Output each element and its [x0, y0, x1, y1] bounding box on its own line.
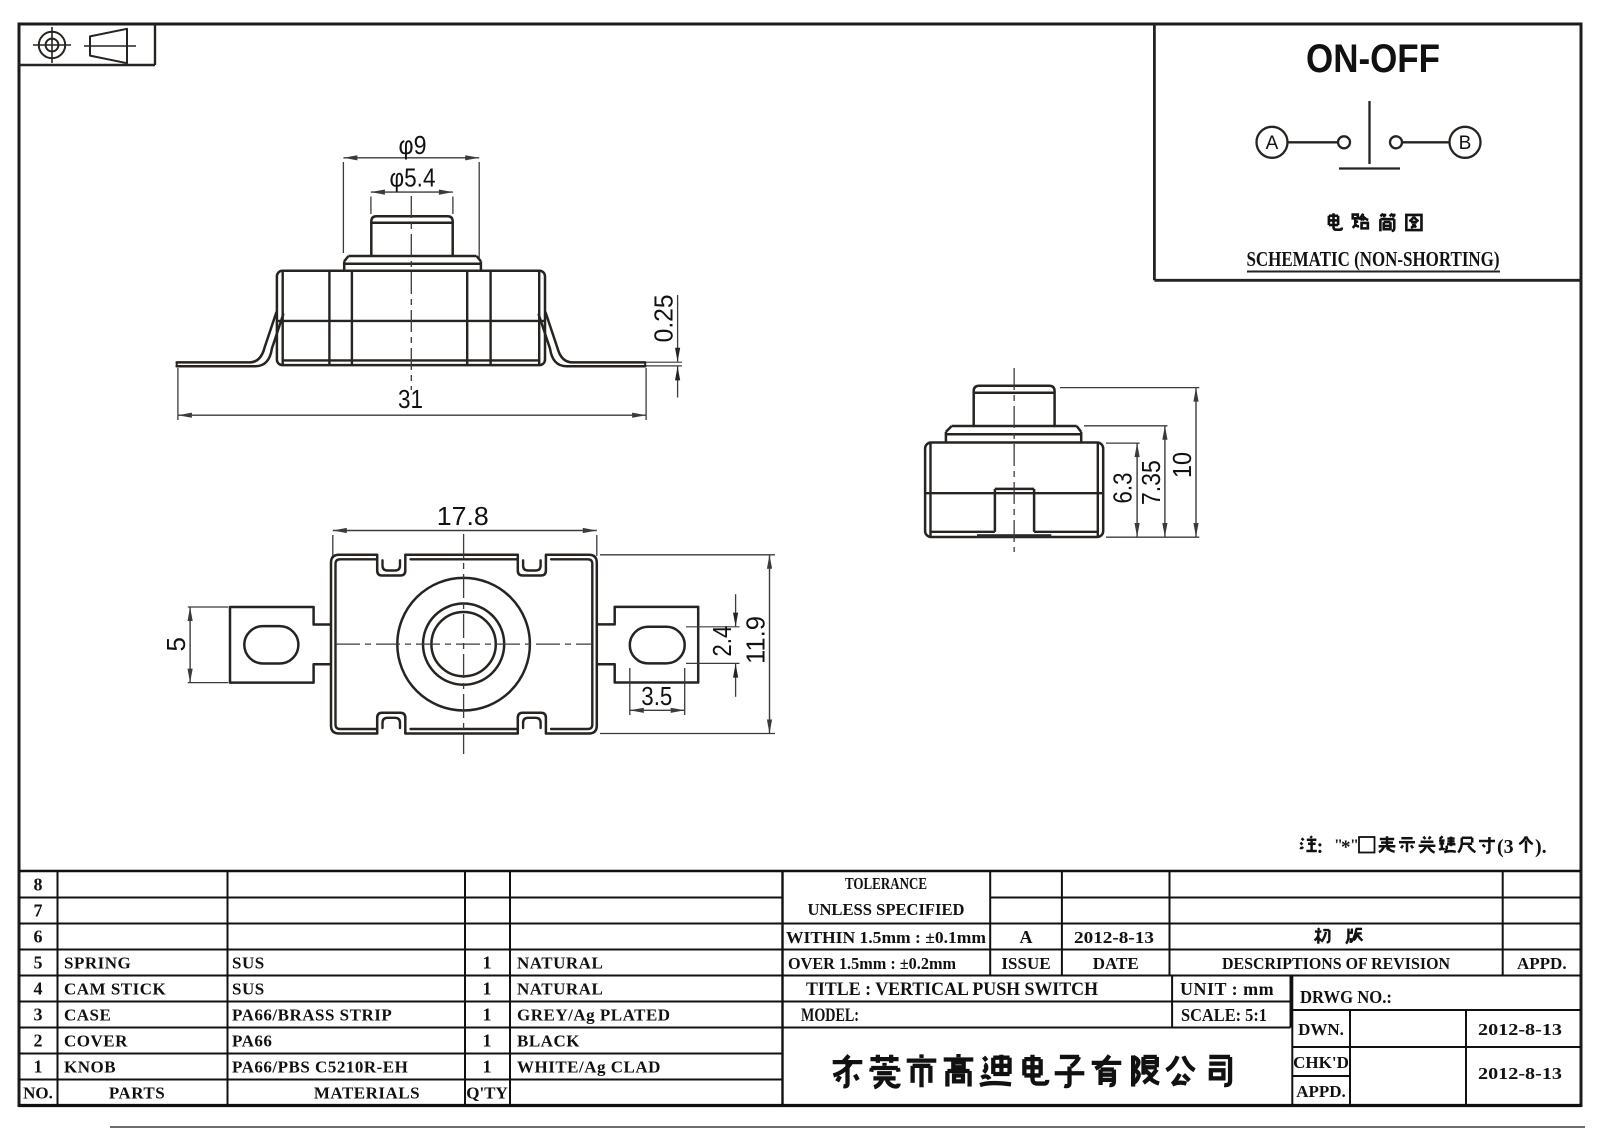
svg-text:A: A — [1266, 133, 1279, 154]
svg-text:GREY/Ag PLATED: GREY/Ag PLATED — [517, 1006, 671, 1025]
svg-text:TOLERANCE: TOLERANCE — [845, 874, 927, 893]
svg-text:MATERIALS: MATERIALS — [314, 1084, 420, 1103]
svg-text:17.8: 17.8 — [437, 501, 489, 531]
svg-text:5: 5 — [34, 953, 43, 973]
svg-text:6: 6 — [34, 927, 43, 947]
svg-text:4: 4 — [34, 979, 43, 999]
svg-text::: : — [1317, 836, 1324, 858]
svg-text:3: 3 — [34, 1005, 43, 1025]
svg-text:NATURAL: NATURAL — [517, 980, 603, 999]
svg-text:MODEL:: MODEL: — [801, 1005, 859, 1026]
svg-text:1: 1 — [483, 1005, 492, 1025]
svg-text:7: 7 — [34, 901, 43, 921]
svg-text:1: 1 — [483, 953, 492, 973]
svg-text:5: 5 — [161, 637, 191, 651]
svg-text:OVER 1.5mm : ±0.2mm: OVER 1.5mm : ±0.2mm — [788, 954, 956, 973]
svg-text:PA66/BRASS STRIP: PA66/BRASS STRIP — [232, 1006, 392, 1025]
svg-text:(3: (3 — [1497, 836, 1514, 858]
svg-text:CASE: CASE — [64, 1006, 111, 1025]
svg-text:NO.: NO. — [23, 1084, 53, 1103]
svg-text:0.25: 0.25 — [648, 294, 678, 342]
svg-text:1: 1 — [483, 979, 492, 999]
svg-text:APPD.: APPD. — [1517, 954, 1567, 973]
svg-text:B: B — [1459, 133, 1472, 154]
svg-text:1: 1 — [34, 1057, 43, 1077]
svg-text:2012-8-13: 2012-8-13 — [1478, 1020, 1562, 1039]
svg-text:CHK'D: CHK'D — [1293, 1053, 1349, 1072]
svg-text:6.3: 6.3 — [1108, 473, 1138, 504]
svg-text:NATURAL: NATURAL — [517, 954, 603, 973]
svg-text:SPRING: SPRING — [64, 954, 131, 973]
svg-text:TITLE : VERTICAL PUSH SWITCH: TITLE : VERTICAL PUSH SWITCH — [806, 979, 1098, 1000]
svg-text:ISSUE: ISSUE — [1001, 954, 1050, 973]
svg-text:2012-8-13: 2012-8-13 — [1478, 1064, 1562, 1083]
svg-text:Q'TY: Q'TY — [466, 1084, 508, 1103]
svg-text:CAM STICK: CAM STICK — [64, 980, 167, 999]
svg-text:10: 10 — [1167, 452, 1197, 478]
svg-text:SCALE: 5:1: SCALE: 5:1 — [1181, 1005, 1267, 1025]
svg-text:A: A — [1020, 927, 1033, 947]
svg-text:φ5.4: φ5.4 — [390, 163, 436, 193]
svg-text:2: 2 — [34, 1031, 43, 1051]
svg-text:SCHEMATIC (NON-SHORTING): SCHEMATIC (NON-SHORTING) — [1247, 247, 1500, 271]
svg-text:DESCRIPTIONS OF REVISION: DESCRIPTIONS OF REVISION — [1222, 954, 1451, 973]
svg-text:SUS: SUS — [232, 980, 265, 999]
svg-text:": " — [1350, 837, 1359, 854]
svg-text:1: 1 — [483, 1031, 492, 1051]
svg-text:31: 31 — [398, 384, 423, 414]
svg-text:1: 1 — [483, 1057, 492, 1077]
svg-text:7.35: 7.35 — [1136, 460, 1166, 505]
svg-text:).: ). — [1535, 836, 1547, 858]
svg-text:ON-OFF: ON-OFF — [1306, 37, 1440, 81]
svg-text:BLACK: BLACK — [517, 1032, 580, 1051]
svg-text:2.4: 2.4 — [707, 626, 737, 657]
svg-text:UNLESS SPECIFIED: UNLESS SPECIFIED — [808, 900, 965, 919]
svg-text:PARTS: PARTS — [109, 1084, 165, 1103]
svg-text:COVER: COVER — [64, 1032, 128, 1051]
svg-text:8: 8 — [34, 874, 43, 894]
svg-text:WITHIN 1.5mm : ±0.1mm: WITHIN 1.5mm : ±0.1mm — [786, 928, 986, 947]
svg-text:PA66/PBS C5210R-EH: PA66/PBS C5210R-EH — [232, 1058, 408, 1077]
svg-text:11.9: 11.9 — [740, 616, 770, 664]
svg-text:DRWG NO.:: DRWG NO.: — [1300, 987, 1392, 1007]
svg-text:DATE: DATE — [1093, 954, 1139, 973]
svg-text:3.5: 3.5 — [641, 681, 672, 711]
svg-text:APPD.: APPD. — [1296, 1082, 1346, 1101]
svg-text:PA66: PA66 — [232, 1032, 272, 1051]
svg-text:UNIT : mm: UNIT : mm — [1180, 979, 1274, 999]
svg-text:φ9: φ9 — [399, 130, 427, 160]
svg-text:DWN.: DWN. — [1298, 1020, 1344, 1039]
svg-text:2012-8-13: 2012-8-13 — [1074, 928, 1154, 947]
svg-text:KNOB: KNOB — [64, 1058, 116, 1077]
svg-text:SUS: SUS — [232, 954, 265, 973]
svg-text:WHITE/Ag CLAD: WHITE/Ag CLAD — [517, 1058, 661, 1077]
